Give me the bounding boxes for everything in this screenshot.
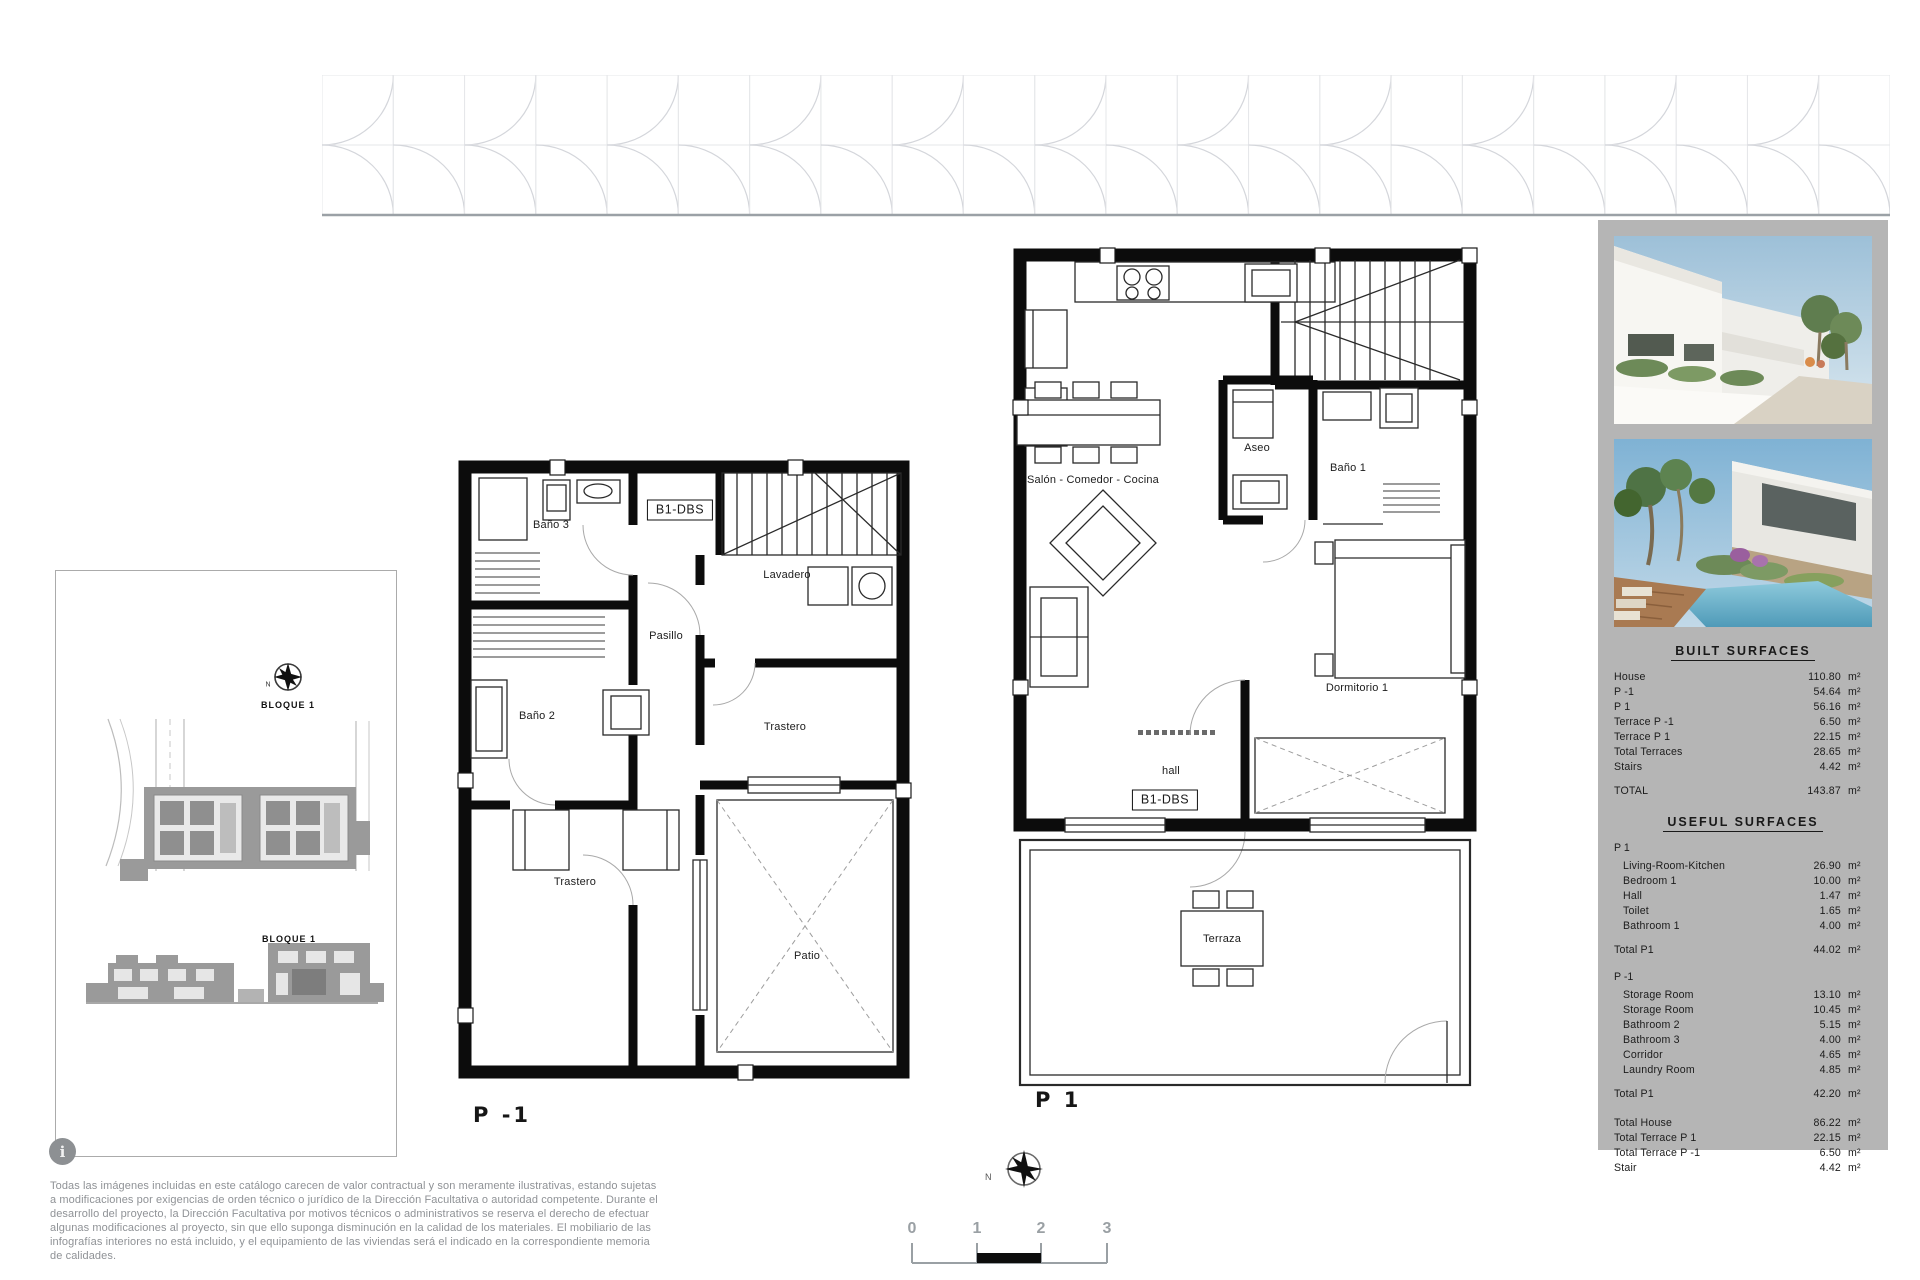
summary-table: Total House86.22m² Total Terrace P 122.1… <box>1614 1116 1872 1176</box>
brochure-plan-sheet: N BLOQUE 1 BLOQUE 1 <box>0 0 1920 1280</box>
scale-label-0: 0 <box>908 1220 917 1238</box>
built-surfaces-title: BUILT SURFACES <box>1614 642 1872 661</box>
table-row: Toilet1.65m² <box>1614 904 1872 919</box>
site-buildings-plan <box>120 787 370 881</box>
table-row: Laundry Room4.85m² <box>1614 1063 1872 1078</box>
built-surfaces-table: House110.80m² P -154.64m² P 156.16m² Ter… <box>1614 670 1872 775</box>
info-glyph: i <box>60 1143 66 1161</box>
table-row: Bathroom 14.00m² <box>1614 919 1872 934</box>
site-buildings-elevation <box>86 943 384 1003</box>
decorative-pattern-band <box>322 75 1890 217</box>
render-photo-exterior <box>1614 236 1872 424</box>
useful-p-minus1-total-row: Total P1 42.20 m² <box>1614 1087 1872 1102</box>
table-row: Total House86.22m² <box>1614 1116 1872 1131</box>
room-label-lavadero: Lavadero <box>763 569 810 581</box>
north-compass-icon <box>998 1143 1050 1195</box>
table-row: Terrace P 122.15m² <box>1614 730 1872 745</box>
table-row: Stair4.42m² <box>1614 1161 1872 1176</box>
room-label-hall: hall <box>1162 765 1180 777</box>
useful-section-header-p-minus1: P -1 <box>1614 970 1872 985</box>
plan-title-p-minus-1: P -1 <box>473 1103 531 1127</box>
room-label-aseo: Aseo <box>1244 442 1270 454</box>
legal-disclaimer: Todas las imágenes incluidas en este cat… <box>50 1180 664 1263</box>
north-label: N <box>985 1172 992 1182</box>
table-row: P 156.16m² <box>1614 700 1872 715</box>
bloque-label-top: BLOQUE 1 <box>261 700 315 710</box>
plan-title-p-1: P 1 <box>1035 1088 1081 1112</box>
room-label-bano1: Baño 1 <box>1330 462 1366 474</box>
useful-section-header-p1: P 1 <box>1614 841 1872 856</box>
table-row: Hall1.47m² <box>1614 889 1872 904</box>
table-row: Total Terraces28.65m² <box>1614 745 1872 760</box>
surfaces-panel: BUILT SURFACES House110.80m² P -154.64m²… <box>1598 220 1888 1150</box>
table-row: Stairs4.42m² <box>1614 760 1872 775</box>
site-plan-drawing <box>56 571 393 1153</box>
table-row: Terrace P -16.50m² <box>1614 715 1872 730</box>
table-row: Bathroom 34.00m² <box>1614 1033 1872 1048</box>
room-label-pasillo: Pasillo <box>649 630 683 642</box>
scale-bar: 0 1 2 3 <box>900 1220 1124 1268</box>
site-plan-panel: N BLOQUE 1 BLOQUE 1 <box>55 570 397 1157</box>
site-north-label: N <box>265 682 270 689</box>
table-row: Storage Room10.45m² <box>1614 1003 1872 1018</box>
bloque-label-bottom: BLOQUE 1 <box>262 934 316 944</box>
useful-p-minus1-table: Storage Room13.10m² Storage Room10.45m² … <box>1614 988 1872 1078</box>
room-label-trastero-b: Trastero <box>554 876 596 888</box>
floorplan-p-1: Salón - Comedor - Cocina Aseo Baño 1 Dor… <box>1005 240 1495 1120</box>
table-row: Bathroom 25.15m² <box>1614 1018 1872 1033</box>
useful-p1-table: Living-Room-Kitchen26.90m² Bedroom 110.0… <box>1614 859 1872 934</box>
room-label-bano2: Baño 2 <box>519 710 555 722</box>
scale-bar-graphic <box>900 1241 1124 1267</box>
unit-tag-p-1: B1-DBS <box>1132 790 1198 811</box>
built-total-row: TOTAL 143.87 m² <box>1614 784 1872 799</box>
room-label-patio: Patio <box>794 950 820 962</box>
floorplan-p-minus-1-drawing <box>455 455 955 1155</box>
table-row: Corridor4.65m² <box>1614 1048 1872 1063</box>
unit-tag-p-minus-1: B1-DBS <box>647 500 713 521</box>
room-label-bano3: Baño 3 <box>533 519 569 531</box>
useful-p1-total-row: Total P1 44.02 m² <box>1614 943 1872 958</box>
room-label-dormitorio1: Dormitorio 1 <box>1326 682 1388 694</box>
room-label-trastero-a: Trastero <box>764 721 806 733</box>
table-row: Living-Room-Kitchen26.90m² <box>1614 859 1872 874</box>
site-compass-icon <box>274 663 302 691</box>
table-row: House110.80m² <box>1614 670 1872 685</box>
table-row: Total Terrace P 122.15m² <box>1614 1131 1872 1146</box>
scale-label-2: 2 <box>1037 1220 1046 1238</box>
scale-label-3: 3 <box>1103 1220 1112 1238</box>
render-photo-pool <box>1614 439 1872 627</box>
table-row: P -154.64m² <box>1614 685 1872 700</box>
table-row: Bedroom 110.00m² <box>1614 874 1872 889</box>
scale-label-1: 1 <box>973 1220 982 1238</box>
floorplan-p-1-drawing <box>1005 240 1495 1120</box>
table-row: Storage Room13.10m² <box>1614 988 1872 1003</box>
useful-surfaces-title: USEFUL SURFACES <box>1614 813 1872 832</box>
table-row: Total Terrace P -16.50m² <box>1614 1146 1872 1161</box>
info-icon: i <box>49 1138 76 1165</box>
room-label-salon: Salón - Comedor - Cocina <box>1027 474 1159 486</box>
room-label-terraza: Terraza <box>1203 933 1241 945</box>
floorplan-p-minus-1: B1-DBS Baño 3 Lavadero Pasillo Baño 2 Tr… <box>455 455 955 1155</box>
